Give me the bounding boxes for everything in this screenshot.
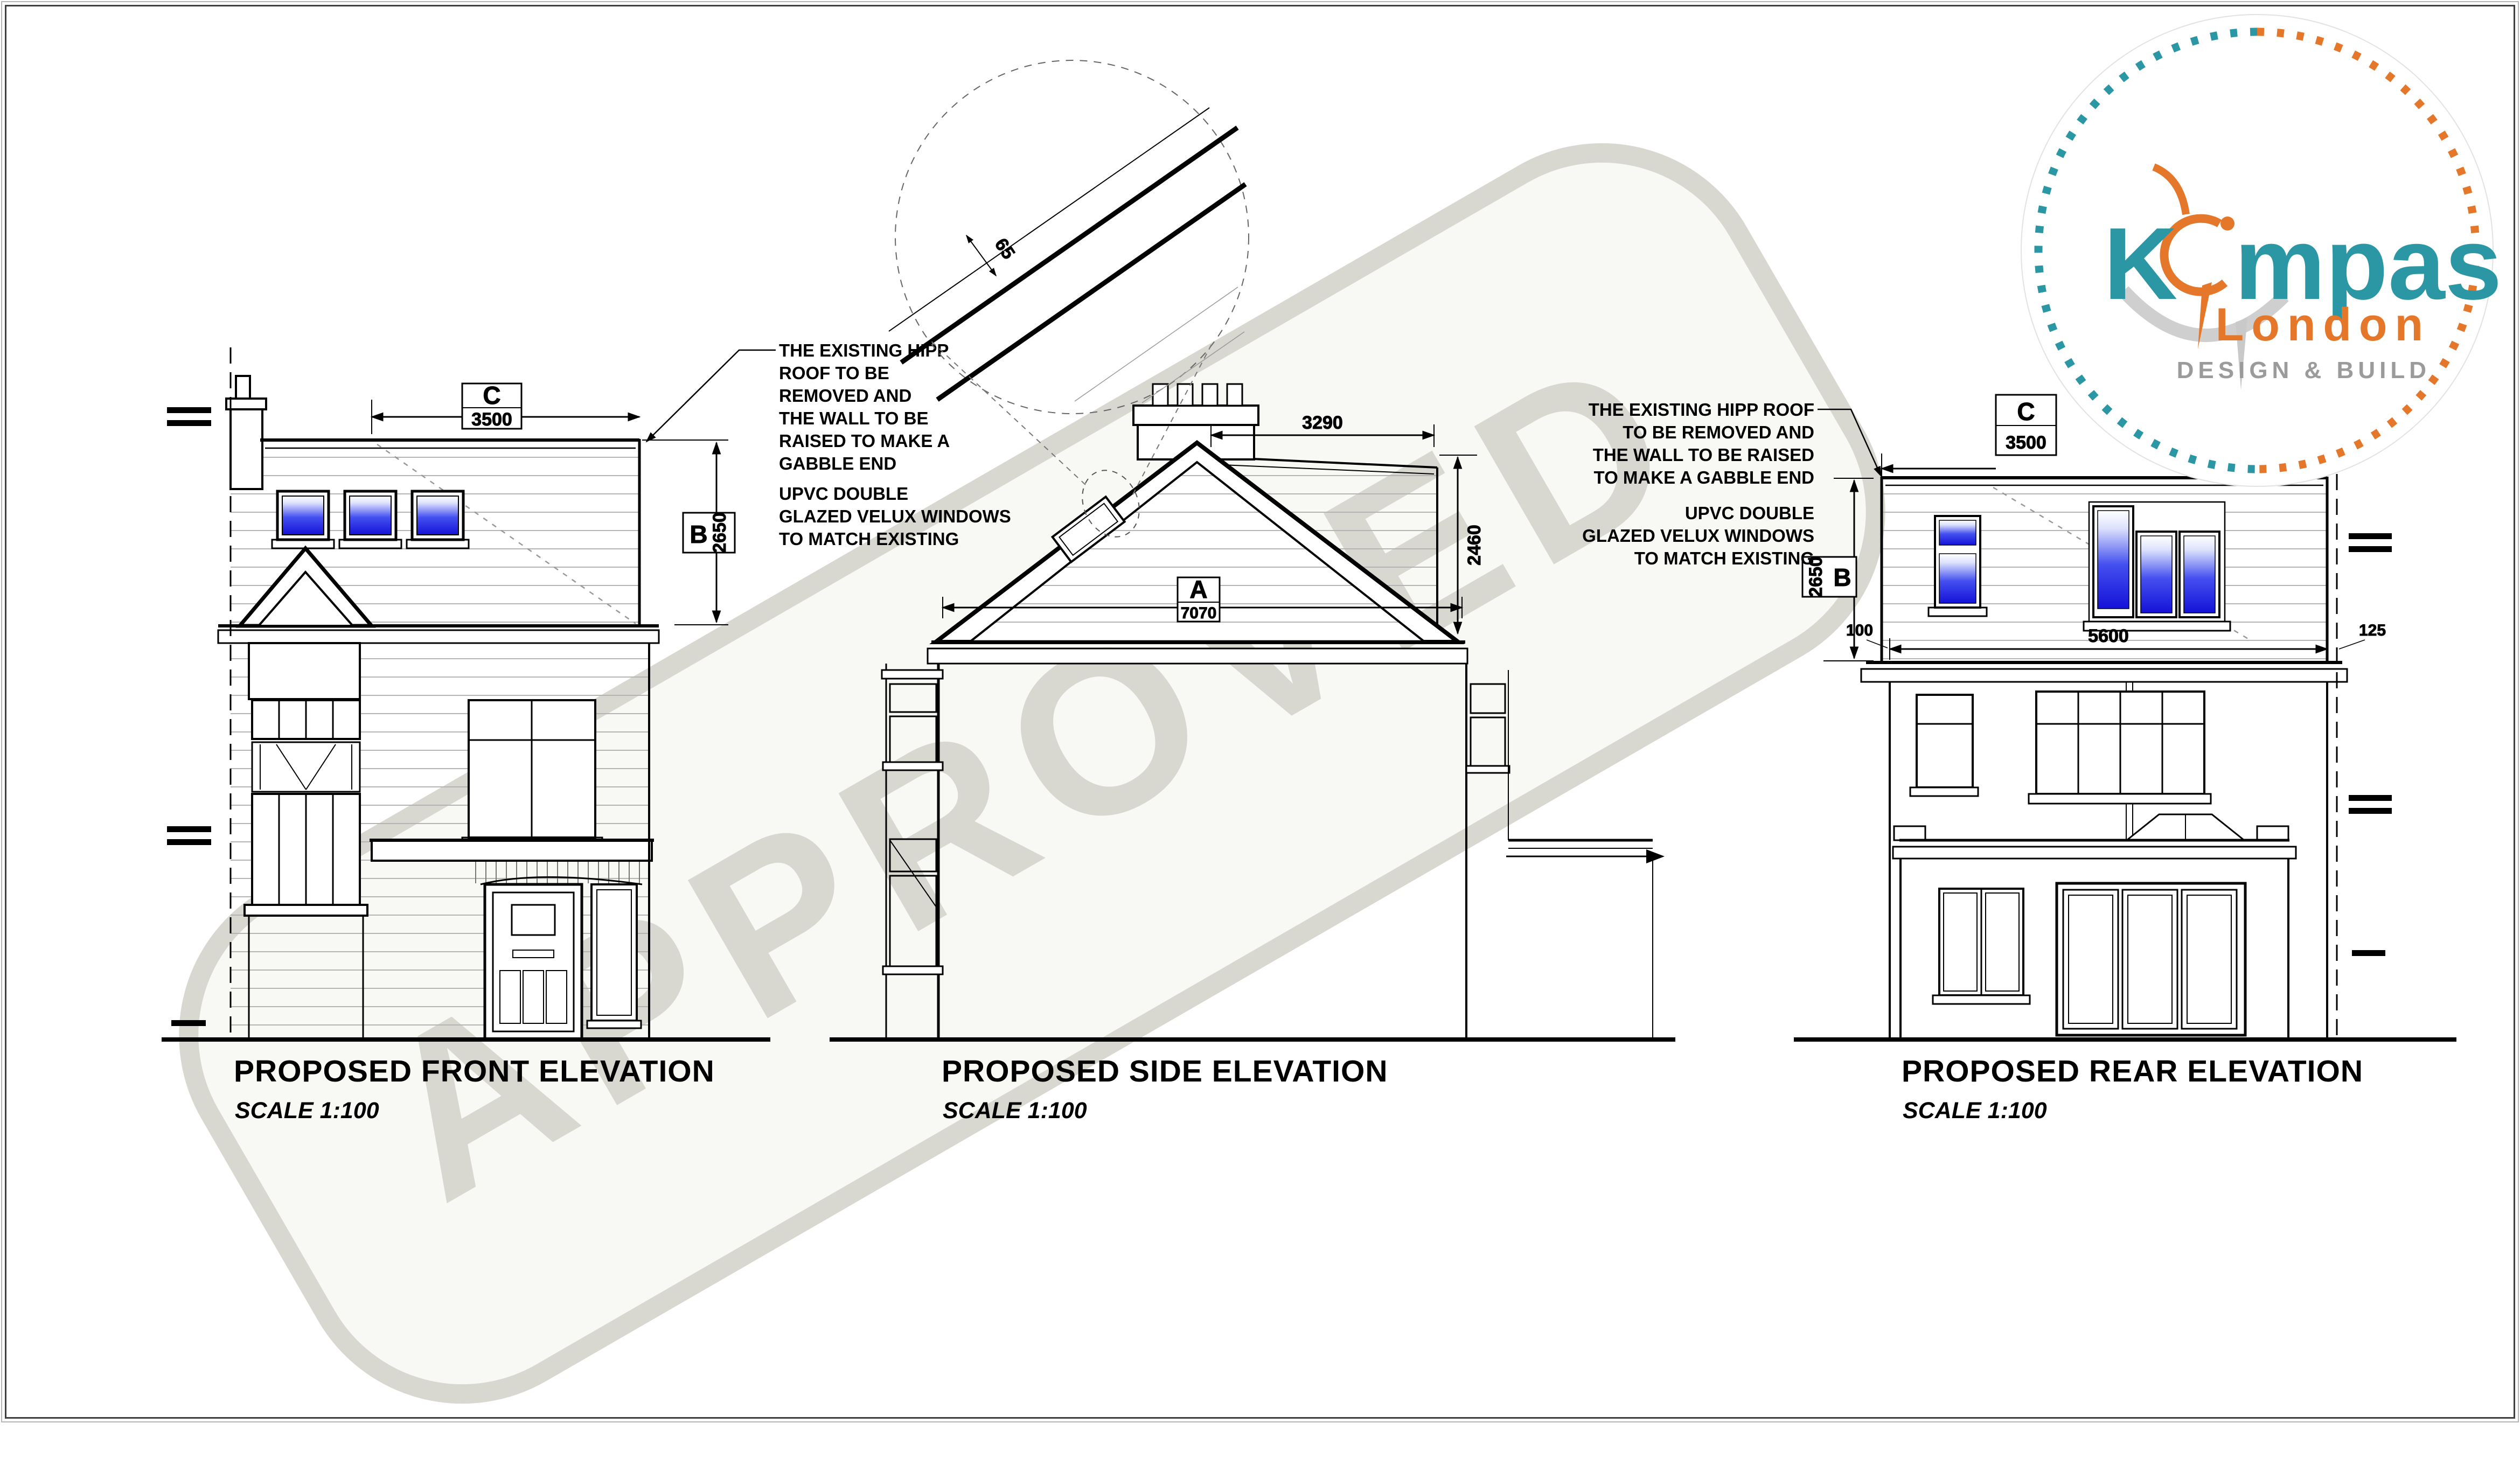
front-dim-height-value: 2650 xyxy=(709,512,730,553)
kompas-logo: K mpas London DESIGN & BUILD xyxy=(2021,15,2502,486)
side-dim-width-label: A xyxy=(1189,575,1207,603)
side-front-wall-profile xyxy=(882,664,943,1040)
rear-dim-wall-value: 5600 xyxy=(2088,626,2129,646)
front-note-roof-line4: THE WALL TO BE xyxy=(779,408,928,428)
rear-note-velux-line1: UPVC DOUBLE xyxy=(1685,503,1814,523)
rear-note-roof-line3: THE WALL TO BE RAISED xyxy=(1593,445,1814,465)
front-note-roof-line2: ROOF TO BE xyxy=(779,363,889,383)
rear-dim-left-value: 100 xyxy=(1846,622,1873,639)
side-elevation-drawing: 3290 2460 A 7070 65 xyxy=(830,60,1675,1040)
side-annotations: PROPOSED SIDE ELEVATION SCALE 1:100 xyxy=(942,1054,1388,1124)
front-elevation-title: PROPOSED FRONT ELEVATION xyxy=(234,1054,715,1089)
front-note-leader-line xyxy=(646,350,776,442)
front-elevation-scale: SCALE 1:100 xyxy=(235,1098,379,1124)
front-first-floor-window xyxy=(462,700,602,847)
side-dim-width-value: 7070 xyxy=(1181,604,1217,622)
front-chimney xyxy=(226,376,266,489)
front-note-velux-line3: TO MATCH EXISTING xyxy=(779,529,959,549)
front-note-roof-line3: REMOVED AND xyxy=(779,386,911,406)
front-note-roof-line1: THE EXISTING HIPP xyxy=(779,340,949,360)
front-dim-height-label: B xyxy=(690,520,707,548)
rear-note-velux-line2: GLAZED VELUX WINDOWS xyxy=(1582,526,1814,546)
front-dim-width-value: 3500 xyxy=(471,409,512,430)
rear-loft-window-small xyxy=(1929,516,1987,616)
rear-extension-window xyxy=(1933,889,2030,1004)
side-rear-extension xyxy=(1466,670,1665,1040)
rear-dim-right-value: 125 xyxy=(2359,622,2386,639)
rear-dim-height-label: B xyxy=(1833,563,1851,591)
side-dim-tile-value: 65 xyxy=(991,235,1019,263)
front-elevation-drawing: C 3500 B 2650 xyxy=(162,347,776,1040)
rear-dim-width-value: 3500 xyxy=(2006,432,2046,453)
rear-extension xyxy=(1893,814,2296,1040)
logo-brand-k: K xyxy=(2104,207,2177,321)
side-elevation-title: PROPOSED SIDE ELEVATION xyxy=(942,1054,1388,1089)
rear-note-roof-line1: THE EXISTING HIPP ROOF xyxy=(1589,400,1814,420)
rear-elevation-scale: SCALE 1:100 xyxy=(1903,1098,2047,1124)
rear-first-floor-window-small xyxy=(1910,695,1978,796)
rear-dim-width-label: C xyxy=(2017,397,2035,425)
logo-tagline: DESIGN & BUILD xyxy=(2177,357,2431,383)
front-note-roof-line6: GABBLE END xyxy=(779,454,896,473)
side-elevation-scale: SCALE 1:100 xyxy=(943,1098,1087,1124)
front-velux-windows xyxy=(272,491,469,548)
front-note-velux-line2: GLAZED VELUX WINDOWS xyxy=(779,506,1011,526)
side-dim-roof-height-value: 2460 xyxy=(1464,525,1485,566)
rear-patio-doors xyxy=(2057,883,2245,1035)
elevation-drawing-sheet: C 3500 B 2650 THE EXISTING HIPP ROOF TO … xyxy=(0,0,2520,1424)
front-dim-width-label: C xyxy=(483,381,500,409)
rear-first-floor-window-wide xyxy=(2029,692,2211,804)
logo-city: London xyxy=(2216,299,2431,351)
rear-loft-window-triple xyxy=(2084,502,2230,631)
front-note-roof-line5: RAISED TO MAKE A xyxy=(779,431,950,451)
rear-note-roof-line4: TO MAKE A GABBLE END xyxy=(1594,468,1814,487)
side-dim-ridge-value: 3290 xyxy=(1302,413,1343,433)
front-door xyxy=(481,877,642,1040)
rear-note-roof-line2: TO BE REMOVED AND xyxy=(1623,422,1814,442)
front-level-markers xyxy=(167,407,211,1026)
rear-note-velux-line3: TO MATCH EXISTING xyxy=(1634,548,1814,568)
front-note-velux-line1: UPVC DOUBLE xyxy=(779,484,908,504)
rear-elevation-drawing: C 3500 2650 B 100 5600 125 xyxy=(1794,395,2456,1040)
rear-level-markers xyxy=(2349,533,2392,956)
rear-elevation-title: PROPOSED REAR ELEVATION xyxy=(1902,1054,2363,1089)
rear-note-leader-line xyxy=(1818,409,1881,476)
